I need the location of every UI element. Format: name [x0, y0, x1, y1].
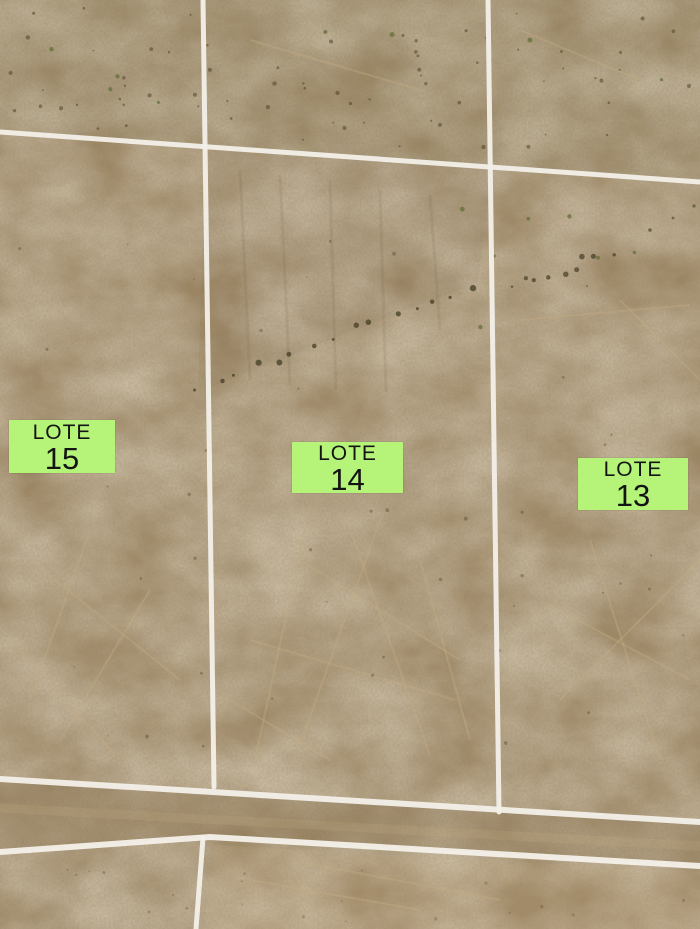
parcel-label-lote-15[interactable]: LOTE 15	[9, 420, 115, 473]
parcel-label-lote-13[interactable]: LOTE 13	[578, 458, 688, 510]
parcel-label-lote-14[interactable]: LOTE 14	[292, 442, 403, 493]
parcel-number: 13	[616, 481, 650, 510]
aerial-parcel-map: LOTE 15 LOTE 14 LOTE 13	[0, 0, 700, 929]
parcel-number: 15	[45, 444, 79, 473]
parcel-number: 14	[330, 465, 364, 494]
